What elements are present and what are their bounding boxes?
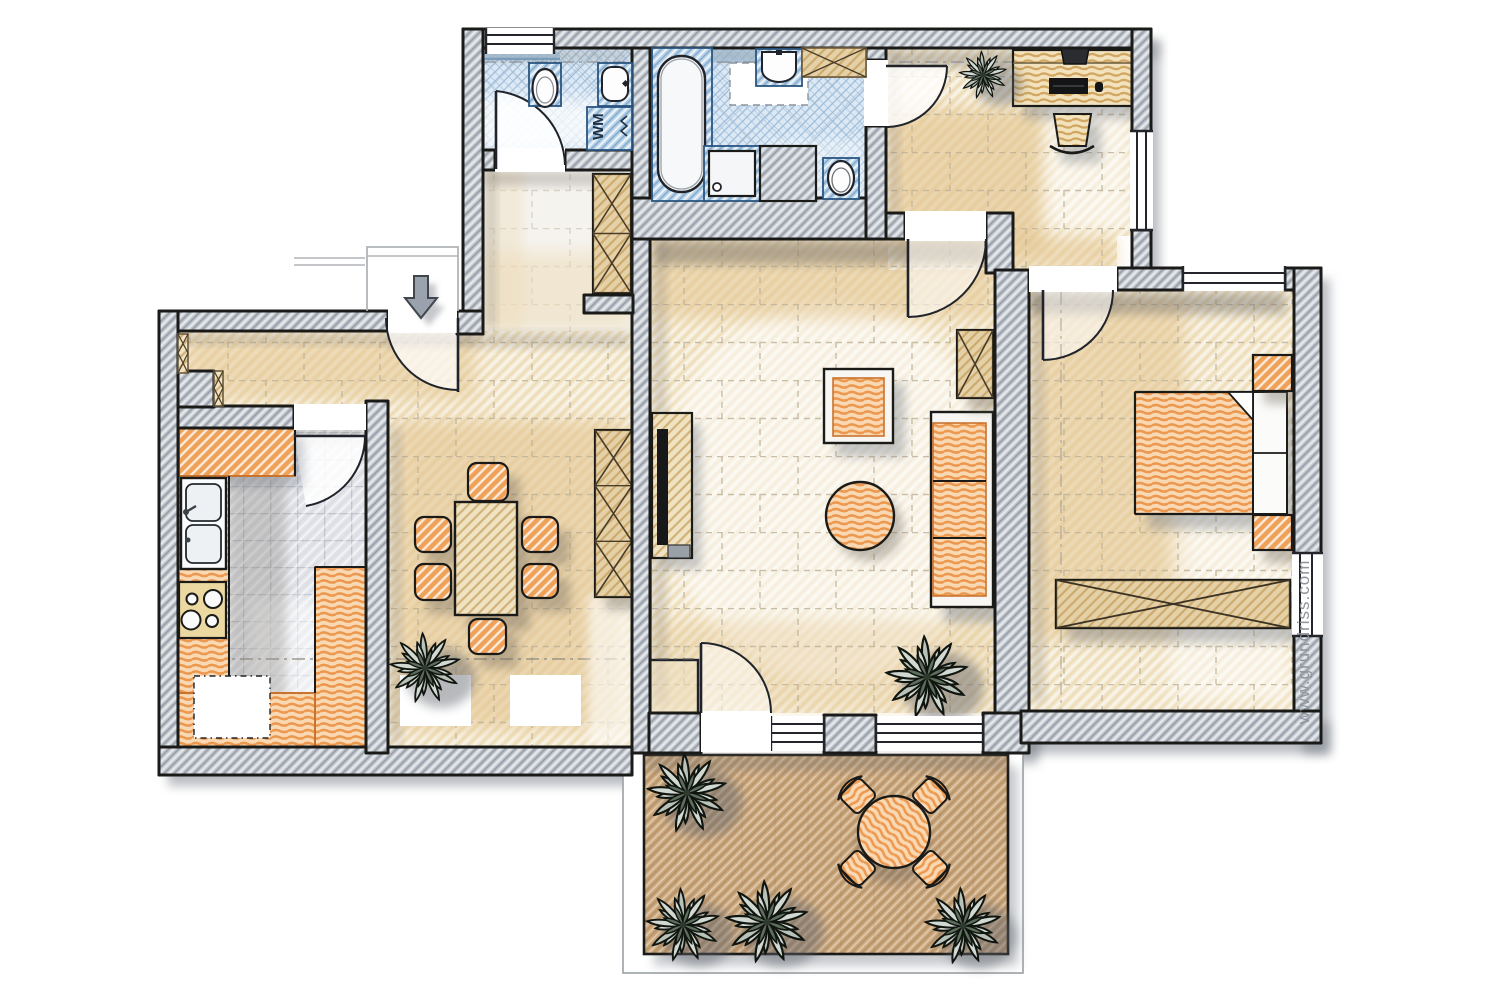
svg-text:www.grundriss.com: www.grundriss.com	[1294, 560, 1313, 725]
svg-text:WM: WM	[590, 113, 607, 140]
